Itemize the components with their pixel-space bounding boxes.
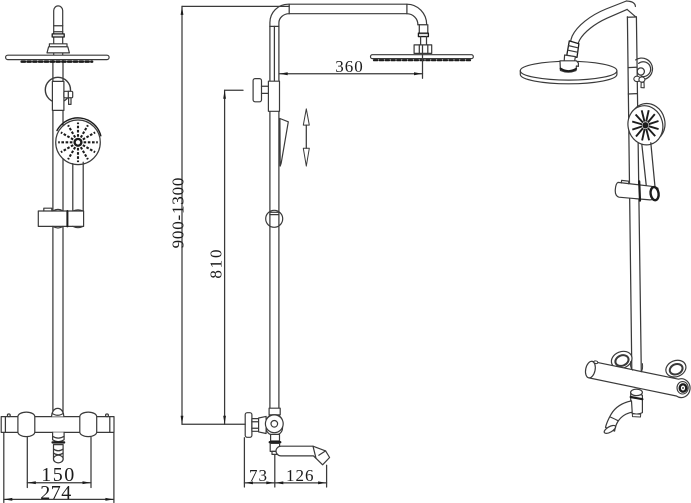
svg-text:126: 126 (286, 466, 315, 485)
svg-text:274: 274 (40, 482, 72, 503)
svg-text:73: 73 (249, 466, 268, 485)
svg-text:810: 810 (207, 248, 226, 279)
svg-text:900-1300: 900-1300 (169, 177, 188, 249)
svg-text:360: 360 (335, 57, 364, 76)
